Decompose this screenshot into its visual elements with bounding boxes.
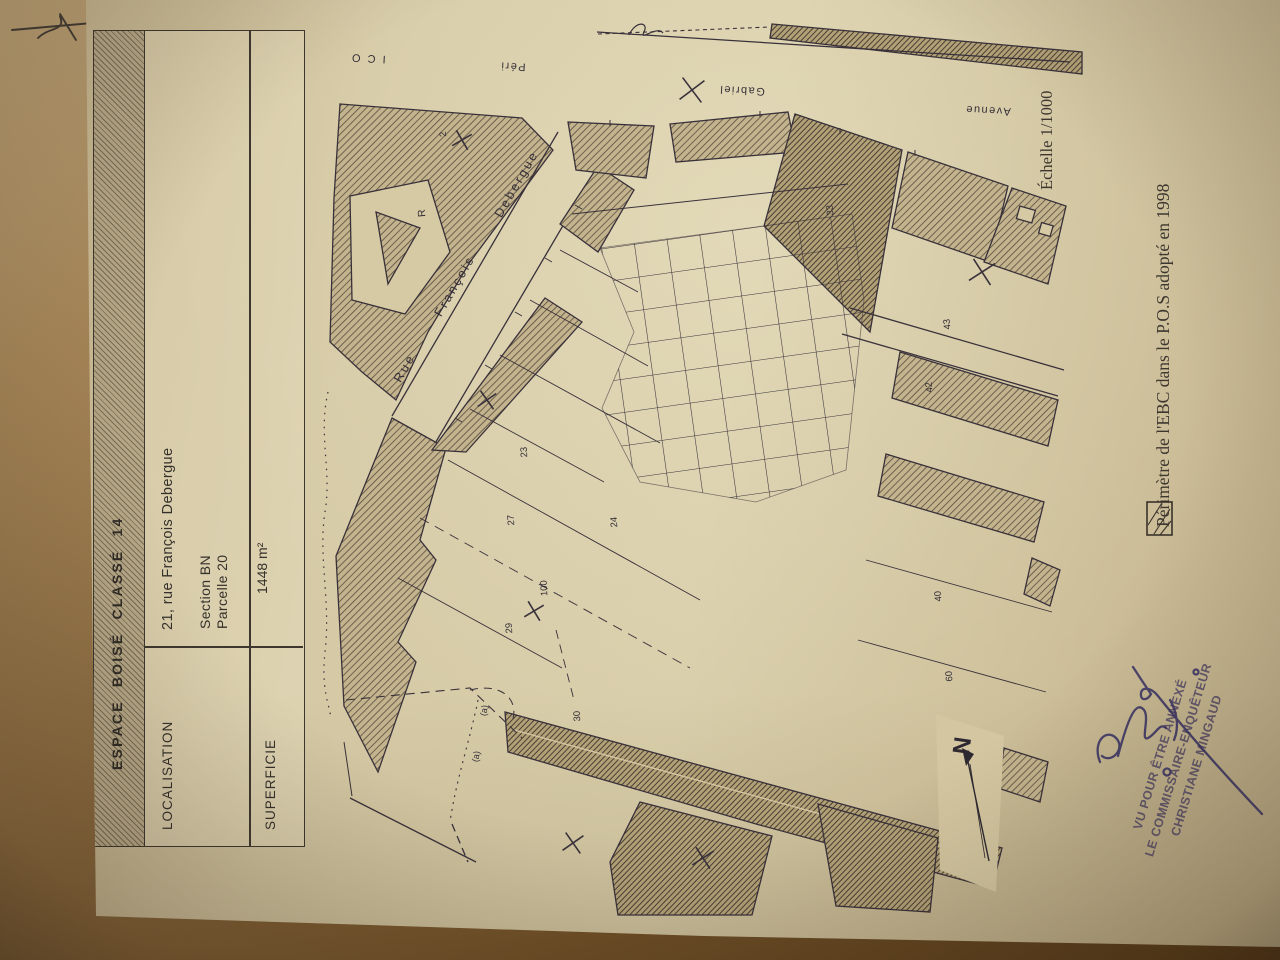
photo-of-document: ESPACE BOISÉ CLASSÉ 14 LOCALISATION 21, … (0, 0, 1280, 960)
parcel-label: 40 (933, 590, 945, 601)
parcel-label: (a) (478, 704, 490, 717)
value-parcelle: Parcelle 20 (212, 479, 232, 629)
value-section-text: Section BN (197, 555, 213, 629)
parcel-label: 2 (438, 131, 449, 137)
ebc-grid-zone (600, 214, 864, 502)
parcel-label: 30 (572, 711, 584, 722)
parcel-label: 100 (539, 580, 551, 596)
value-address-text: 21, rue François Debergue (160, 448, 176, 631)
signature (1080, 630, 1280, 860)
value-parcelle-text: Parcelle 20 (214, 555, 230, 629)
legend-note-text: Périmètre de l'EBC dans le P.O.S adopté … (1153, 184, 1174, 527)
parcel-label: R (416, 209, 429, 218)
parcel-label: 23 (519, 447, 531, 458)
label-localisation: LOCALISATION (156, 700, 178, 830)
value-superficie: 1448 m² (252, 474, 272, 594)
parcel-label: 29 (504, 623, 516, 634)
paper-sheet: ESPACE BOISÉ CLASSÉ 14 LOCALISATION 21, … (0, 0, 1280, 960)
parcel-label: 24 (609, 517, 621, 528)
parcel-label: 27 (506, 515, 518, 526)
legend-swatch-hatched (1146, 501, 1173, 537)
map-linework (323, 24, 1082, 915)
parcel-label: 33 (825, 204, 837, 215)
street-label-gabriel: Gabriel (719, 83, 766, 97)
value-superficie-text: 1448 m² (254, 543, 270, 594)
street-label-ico: I C O (350, 51, 386, 65)
parcel-label: 42 (924, 381, 936, 392)
table-column-separator (145, 646, 303, 648)
label-localisation-text: LOCALISATION (160, 721, 175, 830)
document-title-text: ESPACE BOISÉ CLASSÉ 14 (109, 516, 125, 770)
document-title: ESPACE BOISÉ CLASSÉ 14 (102, 560, 132, 770)
block-north-of-avenue (770, 24, 1082, 74)
label-superficie-text: SUPERFICIE (263, 739, 278, 830)
value-address: 21, rue François Debergue (157, 406, 179, 630)
parcel-label: 60 (944, 670, 956, 681)
cadastral-map: N Rue François Debergue Avenue Gabriel P… (313, 16, 1085, 916)
label-superficie: SUPERFICIE (259, 706, 281, 830)
parcel-label: (a) (470, 750, 482, 763)
legend-note: Périmètre de l'EBC dans le P.O.S adopté … (1150, 59, 1176, 527)
street-label-avenue: Avenue (965, 103, 1012, 117)
table-row-separator (249, 31, 251, 846)
street-label-peri: Péri (500, 59, 526, 72)
parcel-label: 43 (942, 318, 954, 329)
